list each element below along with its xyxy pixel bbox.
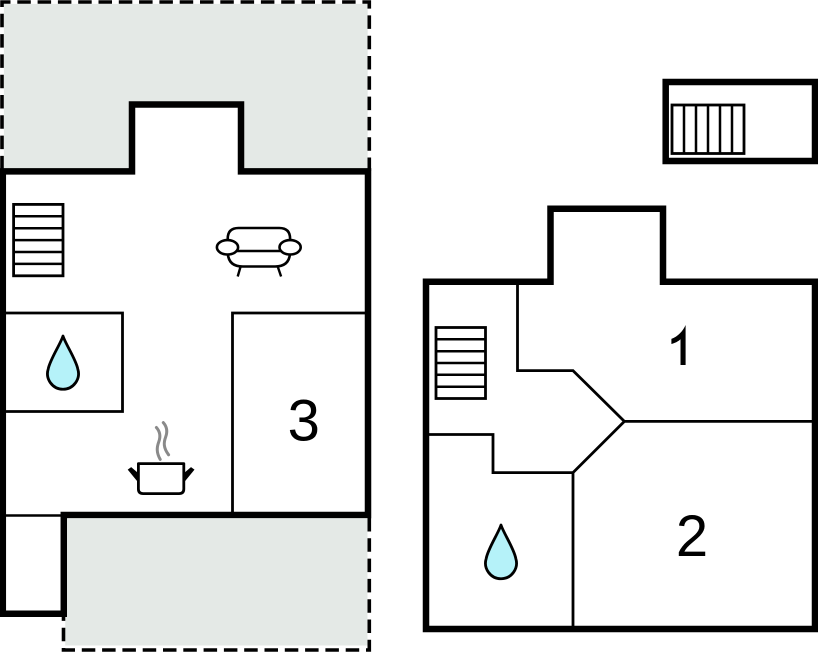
svg-text:2: 2 (676, 504, 708, 569)
svg-text:3: 3 (288, 389, 320, 454)
